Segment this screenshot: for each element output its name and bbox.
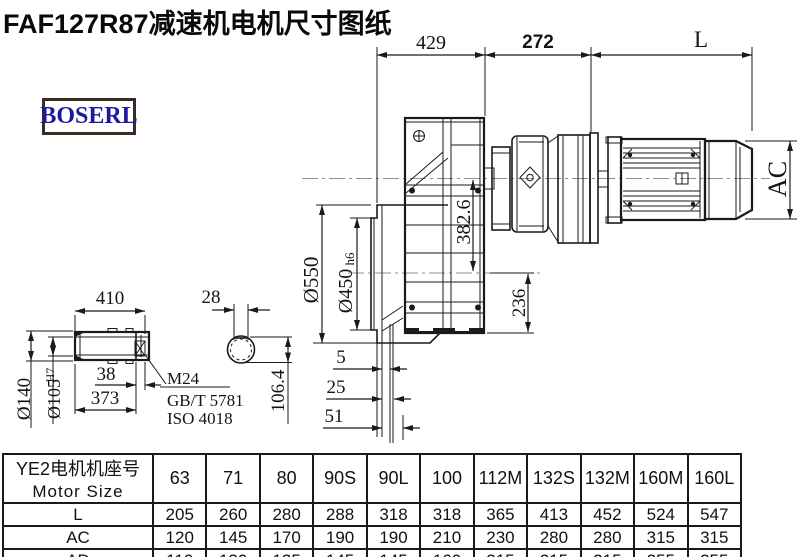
note-thread: M24 bbox=[167, 369, 200, 388]
table-cell: 452 bbox=[581, 503, 634, 526]
table-cell: 110 bbox=[153, 549, 206, 557]
dim-label-373: 373 bbox=[91, 388, 120, 409]
dim-face-offsets: 5 25 51 bbox=[323, 347, 420, 428]
dim-label-140: Ø140 bbox=[14, 378, 35, 420]
table-cell: 413 bbox=[527, 503, 580, 526]
table-cell: 160L bbox=[688, 454, 741, 503]
note-standard-iso: ISO 4018 bbox=[167, 409, 233, 428]
table-cell: 280 bbox=[260, 503, 313, 526]
table-header-row: YE2电机机座号 Motor Size 63718090S90L100112M1… bbox=[3, 454, 741, 503]
dim-top-chain: 429 272 L bbox=[377, 27, 752, 203]
dim-label-106-4: 106.4 bbox=[268, 369, 289, 412]
dim-label-429: 429 bbox=[416, 32, 446, 54]
table-cell: 280 bbox=[527, 526, 580, 549]
note-standard-gb: GB/T 5781 bbox=[167, 391, 244, 410]
dim-label-272: 272 bbox=[522, 32, 554, 53]
table-cell: 132M bbox=[581, 454, 634, 503]
header-cn: YE2电机机座号 bbox=[16, 459, 140, 479]
table-cell: 90S bbox=[313, 454, 366, 503]
table-cell: 210 bbox=[420, 526, 473, 549]
spec-table: YE2电机机座号 Motor Size 63718090S90L100112M1… bbox=[2, 453, 742, 557]
table-cell: 160M bbox=[634, 454, 687, 503]
dim-heights: 382.6 236 bbox=[453, 180, 534, 333]
plug-icon bbox=[414, 131, 425, 142]
table-cell: 145 bbox=[313, 549, 366, 557]
dim-label-550: Ø550 bbox=[299, 257, 323, 304]
table-cell: 120 bbox=[153, 526, 206, 549]
dim-label-105: Ø105 bbox=[44, 379, 64, 419]
table-cell: 71 bbox=[206, 454, 259, 503]
row-label: L bbox=[3, 503, 153, 526]
adapter-outline bbox=[484, 133, 608, 243]
dim-shaft: 410 38 373 Ø140 Ø105 H7 bbox=[14, 288, 244, 428]
row-label: AC bbox=[3, 526, 153, 549]
table-cell: 80 bbox=[260, 454, 313, 503]
page: FAF127R87减速机电机尺寸图纸 BOSERL bbox=[0, 0, 800, 557]
table-cell: 145 bbox=[367, 549, 420, 557]
table-cell: 524 bbox=[634, 503, 687, 526]
dim-label-L: L bbox=[694, 27, 708, 52]
table-cell: 230 bbox=[474, 526, 527, 549]
table-cell: 190 bbox=[313, 526, 366, 549]
row-label: AD bbox=[3, 549, 153, 557]
table-cell: 215 bbox=[474, 549, 527, 557]
table-cell: 255 bbox=[634, 549, 687, 557]
table-cell: 255 bbox=[688, 549, 741, 557]
table-cell: 315 bbox=[688, 526, 741, 549]
dim-label-450: Ø450 bbox=[335, 269, 357, 313]
table-cell: 280 bbox=[581, 526, 634, 549]
dim-label-382-6: 382.6 bbox=[453, 200, 475, 245]
table-cell: 318 bbox=[367, 503, 420, 526]
table-cell: 135 bbox=[260, 549, 313, 557]
table-cell: 365 bbox=[474, 503, 527, 526]
table-cell: 215 bbox=[581, 549, 634, 557]
table-cell: 90L bbox=[367, 454, 420, 503]
dim-label-450-tol: h6 bbox=[342, 252, 357, 266]
table-cell: 130 bbox=[206, 549, 259, 557]
table-cell: 318 bbox=[420, 503, 473, 526]
table-cell: 190 bbox=[367, 526, 420, 549]
table-cell: 112M bbox=[474, 454, 527, 503]
technical-drawing: 429 272 L AC Ø550 Ø450 h6 382.6 bbox=[0, 0, 800, 455]
table-cell: 315 bbox=[634, 526, 687, 549]
table-cell: 100 bbox=[420, 454, 473, 503]
table-row: AD 110130135145145160215215215255255 bbox=[3, 549, 741, 557]
table-cell: 215 bbox=[527, 549, 580, 557]
output-flange-outline bbox=[371, 205, 448, 443]
dim-label-25: 25 bbox=[327, 377, 346, 398]
table-cell: 205 bbox=[153, 503, 206, 526]
table-cell: 170 bbox=[260, 526, 313, 549]
table-cell: 288 bbox=[313, 503, 366, 526]
table-cell: 160 bbox=[420, 549, 473, 557]
motor-outline bbox=[606, 137, 752, 223]
table-header-motor-size: YE2电机机座号 Motor Size bbox=[3, 454, 153, 503]
dim-label-410: 410 bbox=[96, 288, 125, 309]
sight-glass-icon bbox=[520, 167, 540, 188]
table-cell: 547 bbox=[688, 503, 741, 526]
table-row: AC 120145170190190210230280280315315 bbox=[3, 526, 741, 549]
dim-label-236: 236 bbox=[509, 289, 530, 318]
dim-label-38: 38 bbox=[97, 364, 116, 385]
dim-label-28: 28 bbox=[202, 287, 221, 308]
dim-label-AC: AC bbox=[763, 161, 792, 197]
dim-label-5: 5 bbox=[336, 347, 346, 368]
dim-label-51: 51 bbox=[325, 406, 344, 427]
table-cell: 145 bbox=[206, 526, 259, 549]
table-cell: 132S bbox=[527, 454, 580, 503]
dim-flange: Ø550 Ø450 h6 bbox=[299, 205, 377, 343]
dim-label-105-tol: H7 bbox=[43, 368, 57, 383]
table-cell: 63 bbox=[153, 454, 206, 503]
table-row: L 205260280288318318365413452524547 bbox=[3, 503, 741, 526]
table-cell: 260 bbox=[206, 503, 259, 526]
header-en: Motor Size bbox=[32, 482, 123, 501]
shaft-detail-outline bbox=[75, 329, 149, 364]
